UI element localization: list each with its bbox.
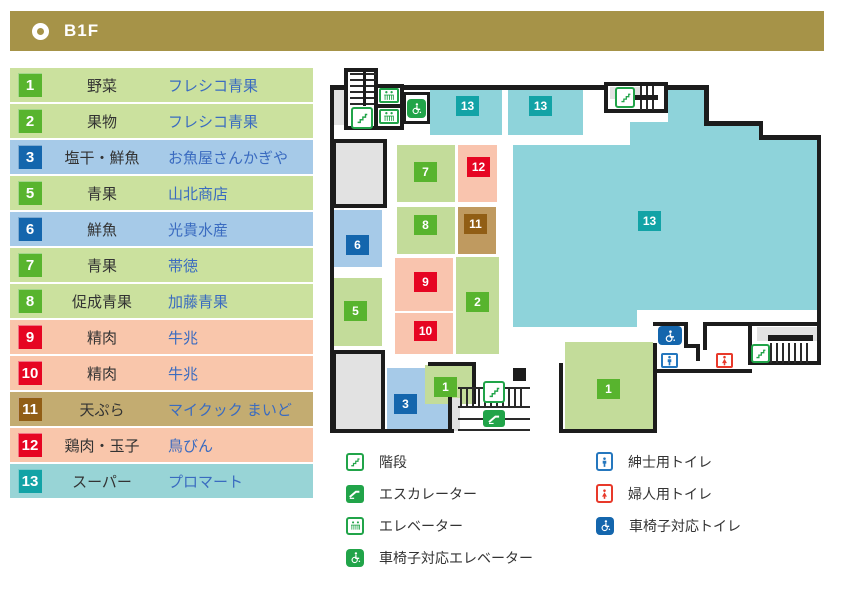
- elevator-icon: [379, 109, 399, 124]
- store-number-badge: 1: [18, 73, 42, 97]
- elevator-icon: [346, 517, 364, 535]
- escalator-icon: [346, 485, 364, 503]
- wall: [428, 362, 476, 366]
- store-number-badge: 8: [18, 289, 42, 313]
- legend-item: エスカレーター: [346, 484, 533, 503]
- zone-badge: 10: [414, 321, 437, 341]
- zone-badge: 3: [394, 394, 417, 414]
- legend-item: 婦人用トイレ: [596, 484, 741, 503]
- legend-item: 車椅子対応トイレ: [596, 516, 741, 535]
- service-area: [452, 398, 460, 431]
- wall: [704, 121, 763, 126]
- store-category: 青果: [42, 183, 162, 204]
- legend-item: 階段: [346, 452, 533, 471]
- store-name: マイクック まいど: [162, 399, 313, 420]
- store-category: 天ぷら: [42, 399, 162, 420]
- directory-row: 6鮮魚光貴水産: [10, 212, 313, 246]
- store-category: 青果: [42, 255, 162, 276]
- wall: [703, 322, 752, 326]
- store-name: 牛兆: [162, 327, 313, 348]
- store-name: 牛兆: [162, 363, 313, 384]
- store-number-badge: 5: [18, 181, 42, 205]
- legend-item: 車椅子対応エレベーター: [346, 548, 533, 567]
- zone-badge: 13: [529, 96, 552, 116]
- zone-badge: 13: [456, 96, 479, 116]
- wall: [817, 135, 821, 365]
- store-category: 促成青果: [42, 291, 162, 312]
- store-number-badge: 6: [18, 217, 42, 241]
- legend-toilets: 紳士用トイレ 婦人用トイレ 車椅子対応トイレ: [596, 452, 741, 548]
- floor-selected-radio-icon: [32, 23, 49, 40]
- wheelchair-toilet-icon: [658, 326, 682, 345]
- stair-rail: [363, 68, 366, 106]
- zone-badge: 1: [434, 377, 457, 397]
- wheelchair-elevator-icon: [346, 549, 364, 567]
- legend-label: 車椅子対応エレベーター: [379, 548, 533, 568]
- directory-row: 7青果帯徳: [10, 248, 313, 282]
- store-number-badge: 12: [18, 433, 42, 457]
- stairs-icon: [615, 87, 635, 108]
- legend-label: 紳士用トイレ: [628, 452, 712, 472]
- wall: [559, 429, 657, 433]
- elevator-icon: [379, 88, 399, 103]
- store-category: 鶏肉・玉子: [42, 435, 162, 456]
- store-category: 精肉: [42, 327, 162, 348]
- zone-badge: 9: [414, 272, 437, 292]
- legend-transport: 階段 エスカレーター エレベーター 車椅子対応エレベーター: [346, 452, 533, 580]
- directory-row: 9精肉牛兆: [10, 320, 313, 354]
- store-number-badge: 2: [18, 109, 42, 133]
- stair-treads: [770, 343, 812, 363]
- legend-label: 階段: [379, 452, 407, 472]
- wall: [759, 135, 821, 140]
- store-number-badge: 11: [18, 397, 42, 421]
- store-number-badge: 9: [18, 325, 42, 349]
- directory-row: 13スーパープロマート: [10, 464, 313, 498]
- directory-row: 8促成青果加藤青果: [10, 284, 313, 318]
- wall: [704, 85, 709, 126]
- zone-badge: 2: [466, 292, 489, 312]
- directory-row: 1野菜フレシコ青果: [10, 68, 313, 102]
- store-name: 光貴水産: [162, 219, 313, 240]
- stair-edge: [458, 406, 530, 408]
- store-number-badge: 3: [18, 145, 42, 169]
- zone-badge: 6: [346, 235, 369, 255]
- wall: [374, 104, 404, 108]
- store-number-badge: 13: [18, 469, 42, 493]
- store-category: 鮮魚: [42, 219, 162, 240]
- store-category: 果物: [42, 111, 162, 132]
- zone-badge: 7: [414, 162, 437, 182]
- store-category: 精肉: [42, 363, 162, 384]
- zone-badge: 1: [597, 379, 620, 399]
- store-name: フレシコ青果: [162, 75, 313, 96]
- store-name: 鳥びん: [162, 435, 313, 456]
- legend-label: エスカレーター: [379, 484, 477, 504]
- zone-badge: 12: [467, 157, 490, 177]
- store-number-badge: 10: [18, 361, 42, 385]
- stair-rail: [768, 335, 813, 341]
- floor-title: B1F: [64, 21, 99, 41]
- directory-row: 3塩干・鮮魚お魚屋さんかぎや: [10, 140, 313, 174]
- stairs-icon: [483, 381, 505, 403]
- service-area: [332, 350, 385, 433]
- womens-toilet-icon: [596, 484, 613, 503]
- directory-row: 10精肉牛兆: [10, 356, 313, 390]
- store-category: 塩干・鮮魚: [42, 147, 162, 168]
- floor-header-b1f[interactable]: B1F: [10, 11, 824, 51]
- wall: [703, 322, 707, 350]
- wall: [330, 429, 454, 433]
- legend-label: エレベーター: [379, 516, 463, 536]
- store-name: フレシコ青果: [162, 111, 313, 132]
- wall: [559, 363, 563, 433]
- zone-badge: 8: [414, 215, 437, 235]
- legend-label: 車椅子対応トイレ: [629, 516, 741, 536]
- pillar: [513, 368, 526, 381]
- wall: [748, 322, 821, 326]
- wall: [653, 369, 752, 373]
- directory-row: 5青果山北商店: [10, 176, 313, 210]
- store-number-badge: 7: [18, 253, 42, 277]
- mens-toilet-icon: [596, 452, 613, 471]
- floor-map: 13 13 13 7 12 8 11 6 5 9 10 2 3 1 1: [330, 63, 827, 440]
- store-name: 帯徳: [162, 255, 313, 276]
- wheelchair-toilet-icon: [596, 517, 614, 535]
- legend-item: 紳士用トイレ: [596, 452, 741, 471]
- directory-row: 2果物フレシコ青果: [10, 104, 313, 138]
- store-name: 山北商店: [162, 183, 313, 204]
- wheelchair-elevator-icon: [407, 99, 426, 118]
- legend-label: 婦人用トイレ: [628, 484, 712, 504]
- directory-row: 12鶏肉・玉子鳥びん: [10, 428, 313, 462]
- store-name: お魚屋さんかぎや: [162, 147, 313, 168]
- mens-toilet-icon: [661, 353, 678, 368]
- zone-badge: 11: [464, 214, 487, 234]
- stairs-icon: [751, 344, 770, 363]
- stairs-icon: [346, 453, 364, 471]
- wall: [448, 393, 452, 433]
- wall: [696, 344, 700, 361]
- womens-toilet-icon: [716, 353, 733, 368]
- wall: [653, 343, 657, 433]
- legend-item: エレベーター: [346, 516, 533, 535]
- stairs-icon: [351, 107, 373, 129]
- b1f-floor-guide-page: B1F 1野菜フレシコ青果 2果物フレシコ青果 3塩干・鮮魚お魚屋さんかぎや 5…: [0, 0, 841, 589]
- zone-badge: 5: [344, 301, 367, 321]
- wall: [330, 85, 334, 433]
- zone-badge: 13: [638, 211, 661, 231]
- store-category: 野菜: [42, 75, 162, 96]
- store-category: スーパー: [42, 471, 162, 492]
- store-name: 加藤青果: [162, 291, 313, 312]
- directory-row: 11天ぷらマイクック まいど: [10, 392, 313, 426]
- escalator-rail: [458, 429, 530, 431]
- service-area: [332, 139, 387, 208]
- store-directory: 1野菜フレシコ青果 2果物フレシコ青果 3塩干・鮮魚お魚屋さんかぎや 5青果山北…: [10, 68, 313, 500]
- escalator-icon: [483, 410, 505, 427]
- store-name: プロマート: [162, 471, 313, 492]
